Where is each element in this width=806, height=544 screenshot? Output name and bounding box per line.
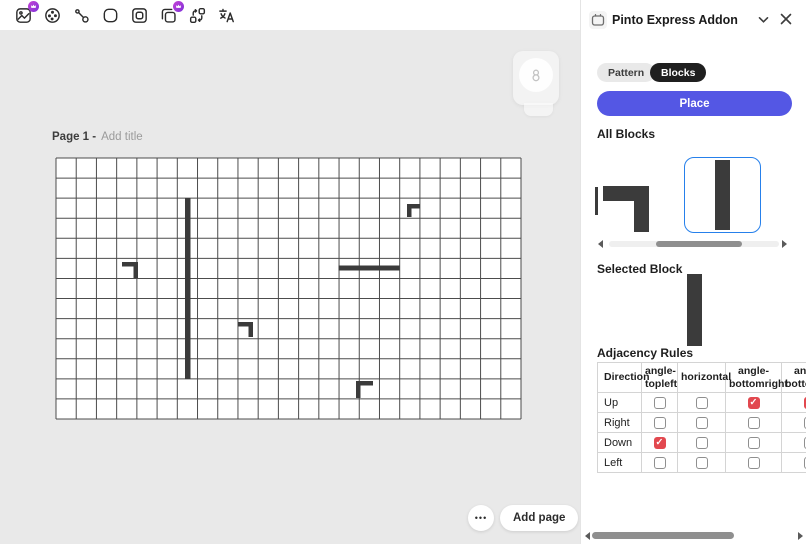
- tab-blocks[interactable]: Blocks: [650, 63, 706, 82]
- selected-block-preview: [687, 274, 702, 346]
- vertical-block-thumbnail: [715, 160, 730, 230]
- angle-block-thumbnail: [603, 186, 649, 232]
- adjacency-checkbox[interactable]: [748, 437, 760, 449]
- premium-crown-icon: [173, 1, 184, 12]
- direction-label: Left: [598, 453, 642, 473]
- selected-block-label: Selected Block: [597, 262, 682, 276]
- adjacency-checkbox[interactable]: [654, 397, 666, 409]
- shape-icon[interactable]: [100, 5, 121, 26]
- adjacency-checkbox[interactable]: ✓: [748, 397, 760, 409]
- adjacency-column-header: angle-bottomright: [726, 363, 782, 393]
- adjacency-checkbox[interactable]: [696, 457, 708, 469]
- placed-block-horizontal-bar[interactable]: [339, 266, 400, 271]
- page-more-options-button[interactable]: •••: [468, 505, 494, 531]
- panel-scrollbar-thumb[interactable]: [592, 532, 734, 539]
- addon-panel: Pinto Express Addon Pattern Blocks Place…: [580, 0, 806, 544]
- close-icon[interactable]: [778, 11, 794, 27]
- adjacency-table-row: Up✓✓: [598, 393, 806, 413]
- color-wheel-icon[interactable]: [42, 5, 63, 26]
- carousel-item-angle-block[interactable]: [601, 185, 651, 233]
- floating-widget[interactable]: [513, 51, 559, 105]
- page-title-placeholder[interactable]: Add title: [101, 131, 143, 143]
- direction-label: Right: [598, 413, 642, 433]
- frame-icon[interactable]: [129, 5, 150, 26]
- canvas-workspace: Page 1 -Add title ••• Add page: [0, 30, 580, 544]
- add-page-button[interactable]: Add page: [500, 505, 578, 531]
- direction-label: Up: [598, 393, 642, 413]
- panel-scroll-right-icon[interactable]: [798, 532, 803, 540]
- adjacency-table-container: Directionangle-toplefthorizontalangle-bo…: [597, 362, 806, 474]
- app-window: Page 1 -Add title ••• Add page Pinto Exp…: [0, 0, 806, 544]
- adjacency-checkbox[interactable]: [696, 417, 708, 429]
- panel-scroll-left-icon[interactable]: [585, 532, 590, 540]
- adjacency-table: Directionangle-toplefthorizontalangle-bo…: [597, 362, 806, 473]
- design-page-grid[interactable]: [55, 157, 522, 420]
- replace-media-icon[interactable]: [13, 5, 34, 26]
- shuffle-icon[interactable]: [187, 5, 208, 26]
- resize-handle-icon: [519, 58, 553, 92]
- adjacency-table-row: Down✓: [598, 433, 806, 453]
- adjacency-checkbox[interactable]: [696, 437, 708, 449]
- adjacency-table-row: Right: [598, 413, 806, 433]
- carousel-scroll-right-icon[interactable]: [782, 240, 787, 248]
- page-number-label: Page 1 -: [52, 131, 96, 143]
- adjacency-column-header: angle-bottomleft: [782, 363, 806, 393]
- carousel-item-vertical-block-selected[interactable]: [684, 157, 761, 233]
- duplicate-icon[interactable]: [158, 5, 179, 26]
- adjacency-checkbox[interactable]: [654, 457, 666, 469]
- adjacency-column-header: angle-topleft: [642, 363, 678, 393]
- adjacency-checkbox[interactable]: [748, 457, 760, 469]
- top-toolbar: [0, 0, 580, 30]
- tab-pattern[interactable]: Pattern: [597, 63, 655, 82]
- carousel-item-partial[interactable]: [595, 187, 598, 215]
- carousel-scrollbar-thumb[interactable]: [656, 241, 742, 247]
- panel-header: Pinto Express Addon: [581, 0, 806, 40]
- place-button[interactable]: Place: [597, 91, 792, 116]
- placed-block-vertical-bar[interactable]: [185, 198, 191, 379]
- chevron-down-icon[interactable]: [755, 12, 771, 28]
- adjacency-column-header: Direction: [598, 363, 642, 393]
- adjacency-checkbox[interactable]: [696, 397, 708, 409]
- adjacency-table-row: Left: [598, 453, 806, 473]
- adjacency-checkbox[interactable]: ✓: [654, 437, 666, 449]
- carousel-scroll-left-icon[interactable]: [598, 240, 603, 248]
- adjacency-checkbox[interactable]: [654, 417, 666, 429]
- direction-label: Down: [598, 433, 642, 453]
- adjacency-rules-label: Adjacency Rules: [597, 346, 693, 360]
- premium-crown-icon: [28, 1, 39, 12]
- addon-app-icon: [589, 11, 607, 29]
- adjacency-checkbox[interactable]: [748, 417, 760, 429]
- draw-path-icon[interactable]: [71, 5, 92, 26]
- all-blocks-label: All Blocks: [597, 127, 655, 141]
- page-caption: Page 1 -Add title: [52, 131, 143, 143]
- panel-title: Pinto Express Addon: [612, 13, 738, 27]
- translate-icon[interactable]: [216, 5, 237, 26]
- floating-widget-tab[interactable]: [524, 103, 553, 116]
- adjacency-column-header: horizontal: [678, 363, 726, 393]
